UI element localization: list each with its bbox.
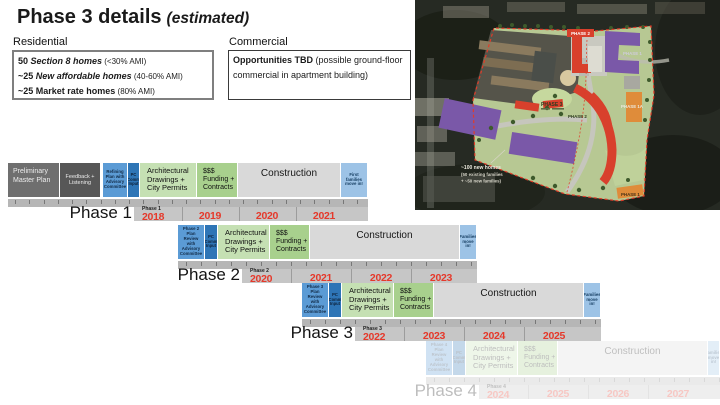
tick-mark	[449, 378, 450, 382]
timeline-year-strip	[242, 269, 477, 283]
tick-mark	[520, 320, 521, 324]
tick-mark	[629, 378, 630, 382]
tick-mark	[434, 378, 435, 382]
res-2-type: New affordable homes	[36, 71, 132, 81]
stage-arch: Architectural Drawings + City Permits	[140, 163, 196, 197]
commercial-box: Opportunities TBD (possible ground-floor…	[228, 50, 411, 100]
tick-mark	[644, 378, 645, 382]
year-label: 2019	[199, 211, 221, 222]
stage-construction: Construction	[558, 341, 707, 375]
res-1-ami: (<30% AMI)	[102, 57, 146, 66]
phase-label: Phase 4	[337, 382, 477, 399]
stage-refine: Refining Plan with Advisory Committee	[103, 163, 127, 197]
tick-mark	[674, 378, 675, 382]
tick-mark	[286, 200, 287, 204]
tick-mark	[355, 320, 356, 324]
year-separator	[182, 207, 183, 221]
stage-arch: Architectural Drawings + City Permits	[218, 225, 269, 259]
tick-mark	[396, 262, 397, 266]
year-separator	[464, 327, 465, 341]
tick-mark	[44, 200, 45, 204]
residential-line-2: ~25 New affordable homes (40-60% AMI)	[18, 69, 208, 84]
year-separator	[528, 385, 529, 399]
tick-mark	[336, 262, 337, 266]
tick-mark	[479, 378, 480, 382]
res-3-type: Market rate homes	[36, 86, 116, 96]
year-separator	[404, 327, 405, 341]
tick-mark	[460, 320, 461, 324]
tick-mark	[58, 200, 59, 204]
stage-movein: Families move in!	[708, 341, 719, 375]
tick-mark	[569, 378, 570, 382]
year-label: 2023	[423, 331, 445, 342]
tick-mark	[475, 320, 476, 324]
map-annotation-line-2: (50 existing families	[461, 172, 503, 177]
year-label: 2018	[142, 212, 164, 223]
first-year-block: Phase 12018	[142, 207, 164, 223]
tick-mark	[314, 200, 315, 204]
title-text: Phase 3 details	[17, 6, 162, 28]
res-1-type: Section 8 homes	[31, 56, 103, 66]
tick-mark	[351, 262, 352, 266]
year-label: 2021	[310, 273, 332, 284]
tick-mark	[357, 200, 358, 204]
year-separator	[296, 207, 297, 221]
commercial-heading: Commercial	[229, 36, 288, 48]
phase-label: Phase 1	[0, 204, 132, 221]
residential-heading: Residential	[13, 36, 67, 48]
tick-mark	[172, 200, 173, 204]
map-label-phase3: PHASE 3	[541, 102, 563, 108]
stage-funding: $$$ Funding + Contracts	[197, 163, 237, 197]
tick-mark	[441, 262, 442, 266]
tick-mark	[471, 262, 472, 266]
stage-pc: PC Comm Input	[329, 283, 341, 317]
tick-mark	[445, 320, 446, 324]
year-label: 2025	[543, 331, 565, 342]
tick-mark	[411, 262, 412, 266]
tick-mark	[366, 262, 367, 266]
stage-pc: PC Comm Input	[128, 163, 139, 197]
residential-box: 50 Section 8 homes (<30% AMI) ~25 New af…	[12, 50, 214, 100]
tick-mark	[689, 378, 690, 382]
year-label: 2020	[250, 274, 272, 285]
tick-mark	[539, 378, 540, 382]
stage-pc: PC Comm Input	[453, 341, 465, 375]
stage-funding: $$$ Funding + Contracts	[394, 283, 433, 317]
tick-mark	[550, 320, 551, 324]
year-label: 2025	[547, 389, 569, 400]
stage-feedback: Feedback + Listening	[60, 163, 100, 197]
tick-mark	[400, 320, 401, 324]
map-label-phase2-mid: PHASE 2	[568, 114, 587, 119]
year-label: 2024	[483, 331, 505, 342]
year-separator	[648, 385, 649, 399]
tick-mark	[430, 320, 431, 324]
tick-mark	[340, 320, 341, 324]
tick-mark	[261, 262, 262, 266]
tick-mark	[72, 200, 73, 204]
res-1-count: 50	[18, 56, 31, 66]
res-2-ami: (40-60% AMI)	[132, 72, 183, 81]
tick-mark	[415, 320, 416, 324]
stage-arch: Architectural Drawings + City Permits	[342, 283, 393, 317]
tick-mark	[325, 320, 326, 324]
map-label-phase1-bottom: PHASE 1	[621, 192, 640, 197]
map-label-phase1a: PHASE 1A	[621, 104, 644, 109]
year-label: 2020	[256, 211, 278, 222]
tick-mark	[243, 200, 244, 204]
stage-movein: First families move in!	[341, 163, 367, 197]
tick-mark	[215, 200, 216, 204]
stage-pc: PC Comm Input	[205, 225, 217, 259]
tick-mark	[15, 200, 16, 204]
slide: Phase 3 details(estimated) Residential 5…	[0, 0, 720, 405]
tick-mark	[29, 200, 30, 204]
year-separator	[291, 269, 292, 283]
year-label: 2023	[430, 273, 452, 284]
tick-mark	[186, 200, 187, 204]
commercial-bold: Opportunities TBD	[233, 55, 313, 65]
phase-label: Phase 3	[213, 324, 353, 341]
tick-mark	[200, 200, 201, 204]
stage-construction: Construction	[434, 283, 583, 317]
residential-line-3: ~25 Market rate homes (80% AMI)	[18, 84, 208, 99]
stage-refine: Phase 4 Plan Review with Advisory Commit…	[426, 341, 452, 375]
year-separator	[239, 207, 240, 221]
tick-mark	[599, 378, 600, 382]
tick-mark	[565, 320, 566, 324]
tick-mark	[143, 200, 144, 204]
timeline-tick-scale	[8, 199, 368, 207]
tick-mark	[306, 262, 307, 266]
tick-mark	[370, 320, 371, 324]
stage-refine: Phase 2 Plan Review with Advisory Commit…	[178, 225, 204, 259]
tick-mark	[229, 200, 230, 204]
timeline-tick-scale	[178, 261, 477, 269]
year-separator	[588, 385, 589, 399]
commercial-text: Opportunities TBD (possible ground-floor…	[233, 53, 406, 83]
stage-refine: Phase 3 Plan Review with Advisory Commit…	[302, 283, 328, 317]
timeline-tick-scale	[302, 319, 601, 327]
stage-construction: Construction	[238, 163, 340, 197]
tick-mark	[426, 262, 427, 266]
phase-small-label: Phase 4	[487, 385, 509, 390]
tick-mark	[129, 200, 130, 204]
stage-construction: Construction	[310, 225, 459, 259]
map-label-phase1-right: PHASE 1	[623, 51, 642, 56]
site-map-image: PHASE 2 PHASE 1 PHASE 3 PHASE 2 PHASE 1A…	[415, 0, 720, 210]
first-year-block: Phase 22020	[250, 269, 272, 285]
tick-mark	[505, 320, 506, 324]
tick-mark	[659, 378, 660, 382]
tick-mark	[310, 320, 311, 324]
tick-mark	[464, 378, 465, 382]
tick-mark	[343, 200, 344, 204]
tick-mark	[246, 262, 247, 266]
tick-mark	[554, 378, 555, 382]
phase-small-label: Phase 3	[363, 327, 385, 332]
tick-mark	[329, 200, 330, 204]
stage-funding: $$$ Funding + Contracts	[518, 341, 557, 375]
white-building	[588, 46, 602, 72]
tick-mark	[584, 378, 585, 382]
tick-mark	[321, 262, 322, 266]
year-label: 2022	[363, 332, 385, 343]
tick-mark	[216, 262, 217, 266]
res-3-ami: (80% AMI)	[115, 87, 155, 96]
tick-mark	[704, 378, 705, 382]
tick-mark	[276, 262, 277, 266]
tick-mark	[201, 262, 202, 266]
tick-mark	[490, 320, 491, 324]
stage-movein: Families move in!	[584, 283, 600, 317]
timeline-year-strip	[479, 385, 720, 399]
phase-label: Phase 2	[100, 266, 240, 283]
map-annotation-line-1: ~100 new homes	[461, 165, 501, 171]
year-label: 2021	[313, 211, 335, 222]
tick-mark	[595, 320, 596, 324]
year-label: 2027	[667, 389, 689, 400]
page-title: Phase 3 details(estimated)	[17, 6, 249, 29]
tick-mark	[524, 378, 525, 382]
tick-mark	[381, 262, 382, 266]
tick-mark	[509, 378, 510, 382]
first-year-block: Phase 32022	[363, 327, 385, 343]
year-separator	[351, 269, 352, 283]
tick-mark	[291, 262, 292, 266]
tick-mark	[86, 200, 87, 204]
stage-movein: Families move in!	[460, 225, 476, 259]
tick-mark	[272, 200, 273, 204]
map-label-phase2-top: PHASE 2	[571, 31, 590, 36]
tick-mark	[300, 200, 301, 204]
residential-line-1: 50 Section 8 homes (<30% AMI)	[18, 54, 208, 69]
year-label: 2026	[607, 389, 629, 400]
tick-mark	[535, 320, 536, 324]
tick-mark	[158, 200, 159, 204]
phase-small-label: Phase 1	[142, 207, 164, 212]
phase-small-label: Phase 2	[250, 269, 272, 274]
map-annotation-line-3: + ~50 new families)	[461, 179, 502, 184]
year-separator	[524, 327, 525, 341]
tick-mark	[186, 262, 187, 266]
tick-mark	[115, 200, 116, 204]
tick-mark	[580, 320, 581, 324]
tick-mark	[257, 200, 258, 204]
stage-arch: Architectural Drawings + City Permits	[466, 341, 517, 375]
res-2-count: ~25	[18, 71, 36, 81]
timeline-year-strip	[355, 327, 601, 341]
year-label: 2022	[370, 273, 392, 284]
timeline-year-strip	[134, 207, 368, 221]
year-separator	[411, 269, 412, 283]
first-year-block: Phase 42024	[487, 385, 509, 401]
tick-mark	[231, 262, 232, 266]
title-qualifier: (estimated)	[167, 10, 250, 27]
tick-mark	[385, 320, 386, 324]
tick-mark	[719, 378, 720, 382]
res-3-count: ~25	[18, 86, 36, 96]
tick-mark	[614, 378, 615, 382]
year-label: 2024	[487, 390, 509, 401]
tick-mark	[101, 200, 102, 204]
tick-mark	[494, 378, 495, 382]
tick-mark	[456, 262, 457, 266]
timeline-tick-scale	[426, 377, 720, 385]
stage-funding: $$$ Funding + Contracts	[270, 225, 309, 259]
stage-pmp: Preliminary Master Plan	[8, 163, 59, 197]
